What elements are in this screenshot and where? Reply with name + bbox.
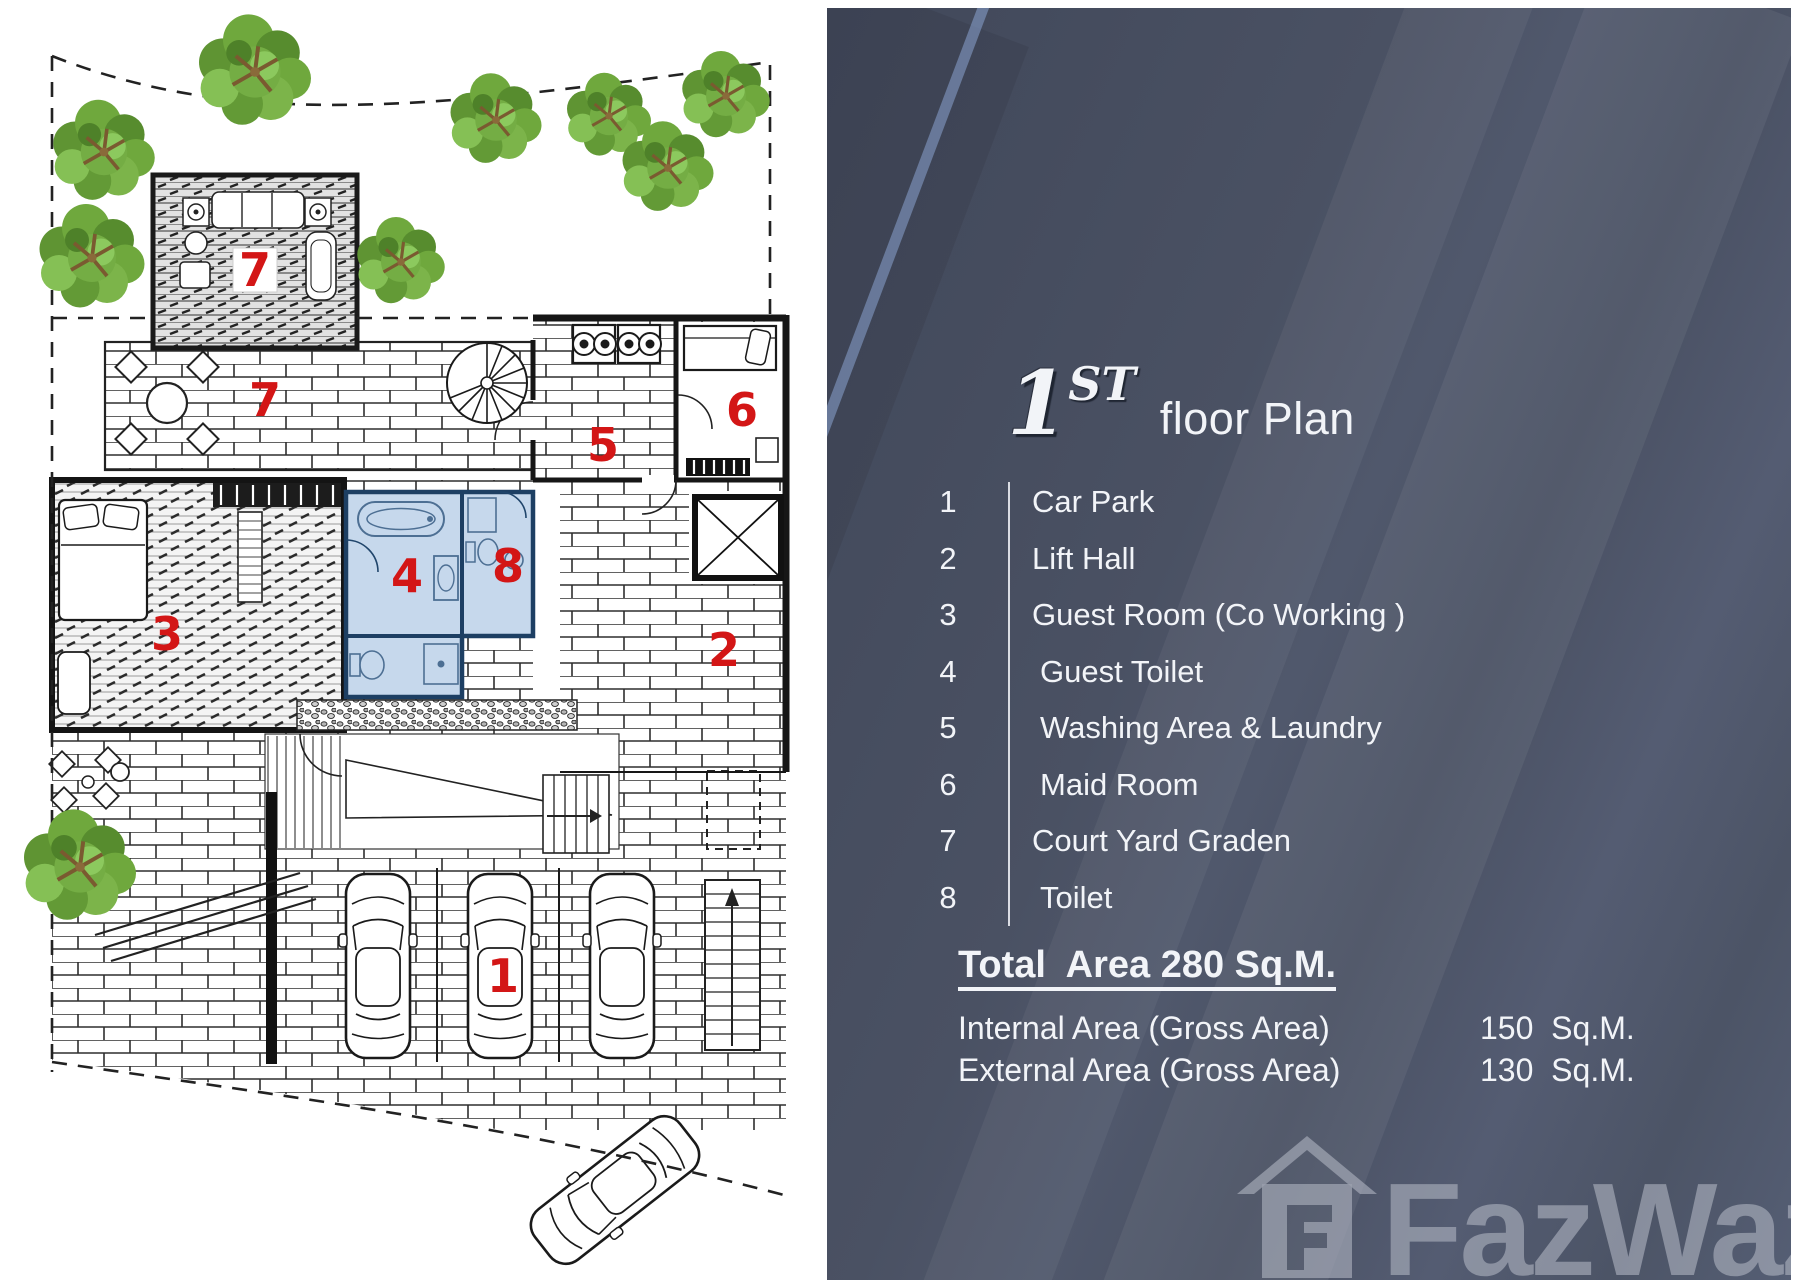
title-number: 1 [1007,370,1068,436]
internal-area-value: 150 Sq.M. [1480,1010,1635,1047]
legend-label: Washing Area & Laundry [1032,710,1382,746]
room-legend: 1 Car Park 2 Lift Hall 3 Guest Room (Co … [827,474,1791,926]
external-area-row: External Area (Gross Area) 130 Sq.M. [958,1052,1758,1094]
wall-fin [266,792,277,1064]
spiral-staircase [447,343,527,423]
legend-label: Maid Room [1032,767,1199,803]
legend-label: Guest Toilet [1032,654,1203,690]
gravel-strip [297,700,577,730]
bed [59,500,147,620]
internal-area-row: Internal Area (Gross Area) 150 Sq.M. [958,1010,1758,1052]
legend-number: 4 [912,654,984,690]
marker-lift-hall: 2 [708,623,740,677]
page: 7 7 5 6 2 3 4 8 1 1 ST floor Plan 1 Car … [0,0,1798,1286]
legend-label: Lift Hall [1032,541,1135,577]
legend-number: 7 [912,823,984,859]
legend-number: 8 [912,880,984,916]
door-gap [642,475,674,485]
legend-number: 5 [912,710,984,746]
marker-maid: 6 [726,383,758,437]
area-breakdown: Internal Area (Gross Area) 150 Sq.M. Ext… [958,1010,1758,1094]
guest-room [52,480,344,730]
external-area-value: 130 Sq.M. [1480,1052,1635,1089]
legend-label: Court Yard Graden [1032,823,1291,859]
floor-plan-title: 1 ST floor Plan [1007,370,1355,445]
marker-car-park: 1 [487,949,519,1003]
legend-number: 6 [912,767,984,803]
legend-row-maid-room: 6 Maid Room [827,757,1791,814]
legend-number: 3 [912,597,984,633]
floor-plan: 7 7 5 6 2 3 4 8 1 [0,0,827,1286]
legend-row-lift-hall: 2 Lift Hall [827,531,1791,588]
legend-row-guest-room: 3 Guest Room (Co Working ) [827,587,1791,644]
title-ordinal: ST [1068,361,1135,407]
info-panel: 1 ST floor Plan 1 Car Park 2 Lift Hall 3… [827,8,1791,1280]
title-text: floor Plan [1160,393,1355,445]
marker-washing: 5 [587,418,619,472]
legend-row-guest-toilet: 4 Guest Toilet [827,644,1791,701]
fazwaz-house-icon [1232,1130,1382,1280]
legend-row-court-yard: 7 Court Yard Graden [827,813,1791,870]
total-area: Total Area 280 Sq.M. [958,944,1336,987]
parked-car-3 [583,874,661,1058]
marker-guest-toilet: 4 [391,549,423,603]
fazwaz-watermark: FazWaz [1232,1130,1791,1280]
external-area-label: External Area (Gross Area) [958,1052,1340,1089]
legend-row-toilet: 8 Toilet [827,870,1791,927]
internal-area-label: Internal Area (Gross Area) [958,1010,1330,1047]
legend-number: 2 [912,541,984,577]
marker-toilet: 8 [492,539,524,593]
fazwaz-logo-text: FazWaz [1382,1171,1791,1280]
stairs-small [543,775,609,853]
lift-shaft [695,497,781,578]
marker-courtyard: 7 [239,243,271,297]
legend-label: Guest Room (Co Working ) [1032,597,1405,633]
marker-guest-room: 3 [151,607,183,661]
legend-label: Toilet [1032,880,1112,916]
washing-machines [573,325,661,363]
legend-number: 1 [912,484,984,520]
armchair [58,652,90,714]
legend-label: Car Park [1032,484,1154,520]
marker-terrace: 7 [249,373,281,427]
legend-row-washing-area: 5 Washing Area & Laundry [827,700,1791,757]
legend-row-car-park: 1 Car Park [827,474,1791,531]
parked-car-1 [339,874,417,1058]
